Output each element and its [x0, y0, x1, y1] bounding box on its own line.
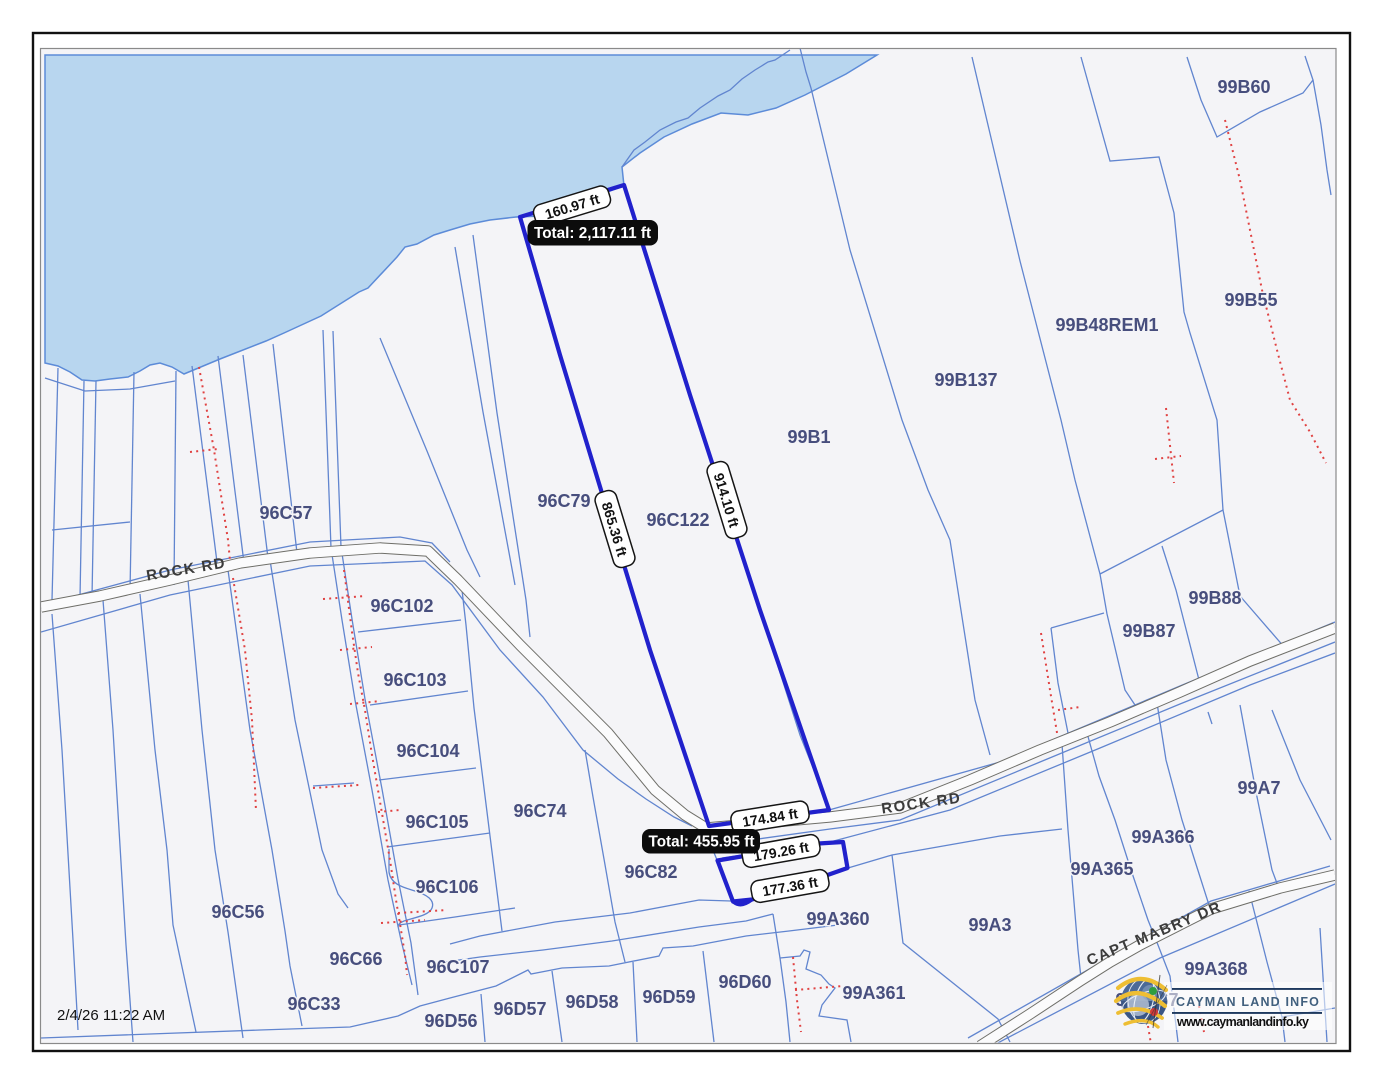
svg-text:96C102: 96C102: [370, 596, 433, 616]
svg-text:96C103: 96C103: [383, 670, 446, 690]
svg-text:99A366: 99A366: [1131, 827, 1194, 847]
svg-text:96C79: 96C79: [537, 491, 590, 511]
svg-text:96D59: 96D59: [642, 987, 695, 1007]
svg-text:96C33: 96C33: [287, 994, 340, 1014]
svg-text:99B1: 99B1: [787, 427, 830, 447]
svg-text:99A368: 99A368: [1184, 959, 1247, 979]
svg-text:96D57: 96D57: [493, 999, 546, 1019]
svg-text:96C105: 96C105: [405, 812, 468, 832]
svg-text:Total: 455.95 ft: Total: 455.95 ft: [649, 834, 755, 851]
svg-text:Total: 2,117.11 ft: Total: 2,117.11 ft: [534, 225, 651, 242]
svg-text:96C56: 96C56: [211, 902, 264, 922]
svg-text:www.caymanlandinfo.ky: www.caymanlandinfo.ky: [1176, 1015, 1309, 1029]
svg-text:96C122: 96C122: [646, 510, 709, 530]
svg-text:96D56: 96D56: [424, 1011, 477, 1031]
svg-text:96C104: 96C104: [396, 741, 459, 761]
svg-text:96C57: 96C57: [259, 503, 312, 523]
svg-text:99A361: 99A361: [842, 983, 905, 1003]
svg-text:99B60: 99B60: [1217, 77, 1270, 97]
svg-text:96C66: 96C66: [329, 949, 382, 969]
svg-text:99B88: 99B88: [1188, 588, 1241, 608]
svg-text:96C74: 96C74: [513, 801, 566, 821]
svg-text:99B137: 99B137: [934, 370, 997, 390]
svg-text:96C106: 96C106: [415, 877, 478, 897]
svg-text:2/4/26 11:22 AM: 2/4/26 11:22 AM: [57, 1007, 165, 1024]
svg-text:96D60: 96D60: [718, 972, 771, 992]
svg-text:99B48REM1: 99B48REM1: [1055, 315, 1158, 335]
svg-text:99A360: 99A360: [806, 909, 869, 929]
svg-text:99B55: 99B55: [1224, 290, 1277, 310]
svg-text:99B87: 99B87: [1122, 621, 1175, 641]
svg-text:99A365: 99A365: [1070, 859, 1133, 879]
svg-text:99A3: 99A3: [968, 915, 1011, 935]
svg-text:99A7: 99A7: [1237, 778, 1280, 798]
svg-text:96C82: 96C82: [624, 862, 677, 882]
svg-text:96C107: 96C107: [426, 957, 489, 977]
svg-text:CAYMAN LAND INFO: CAYMAN LAND INFO: [1176, 995, 1320, 1009]
svg-text:96D58: 96D58: [565, 992, 618, 1012]
